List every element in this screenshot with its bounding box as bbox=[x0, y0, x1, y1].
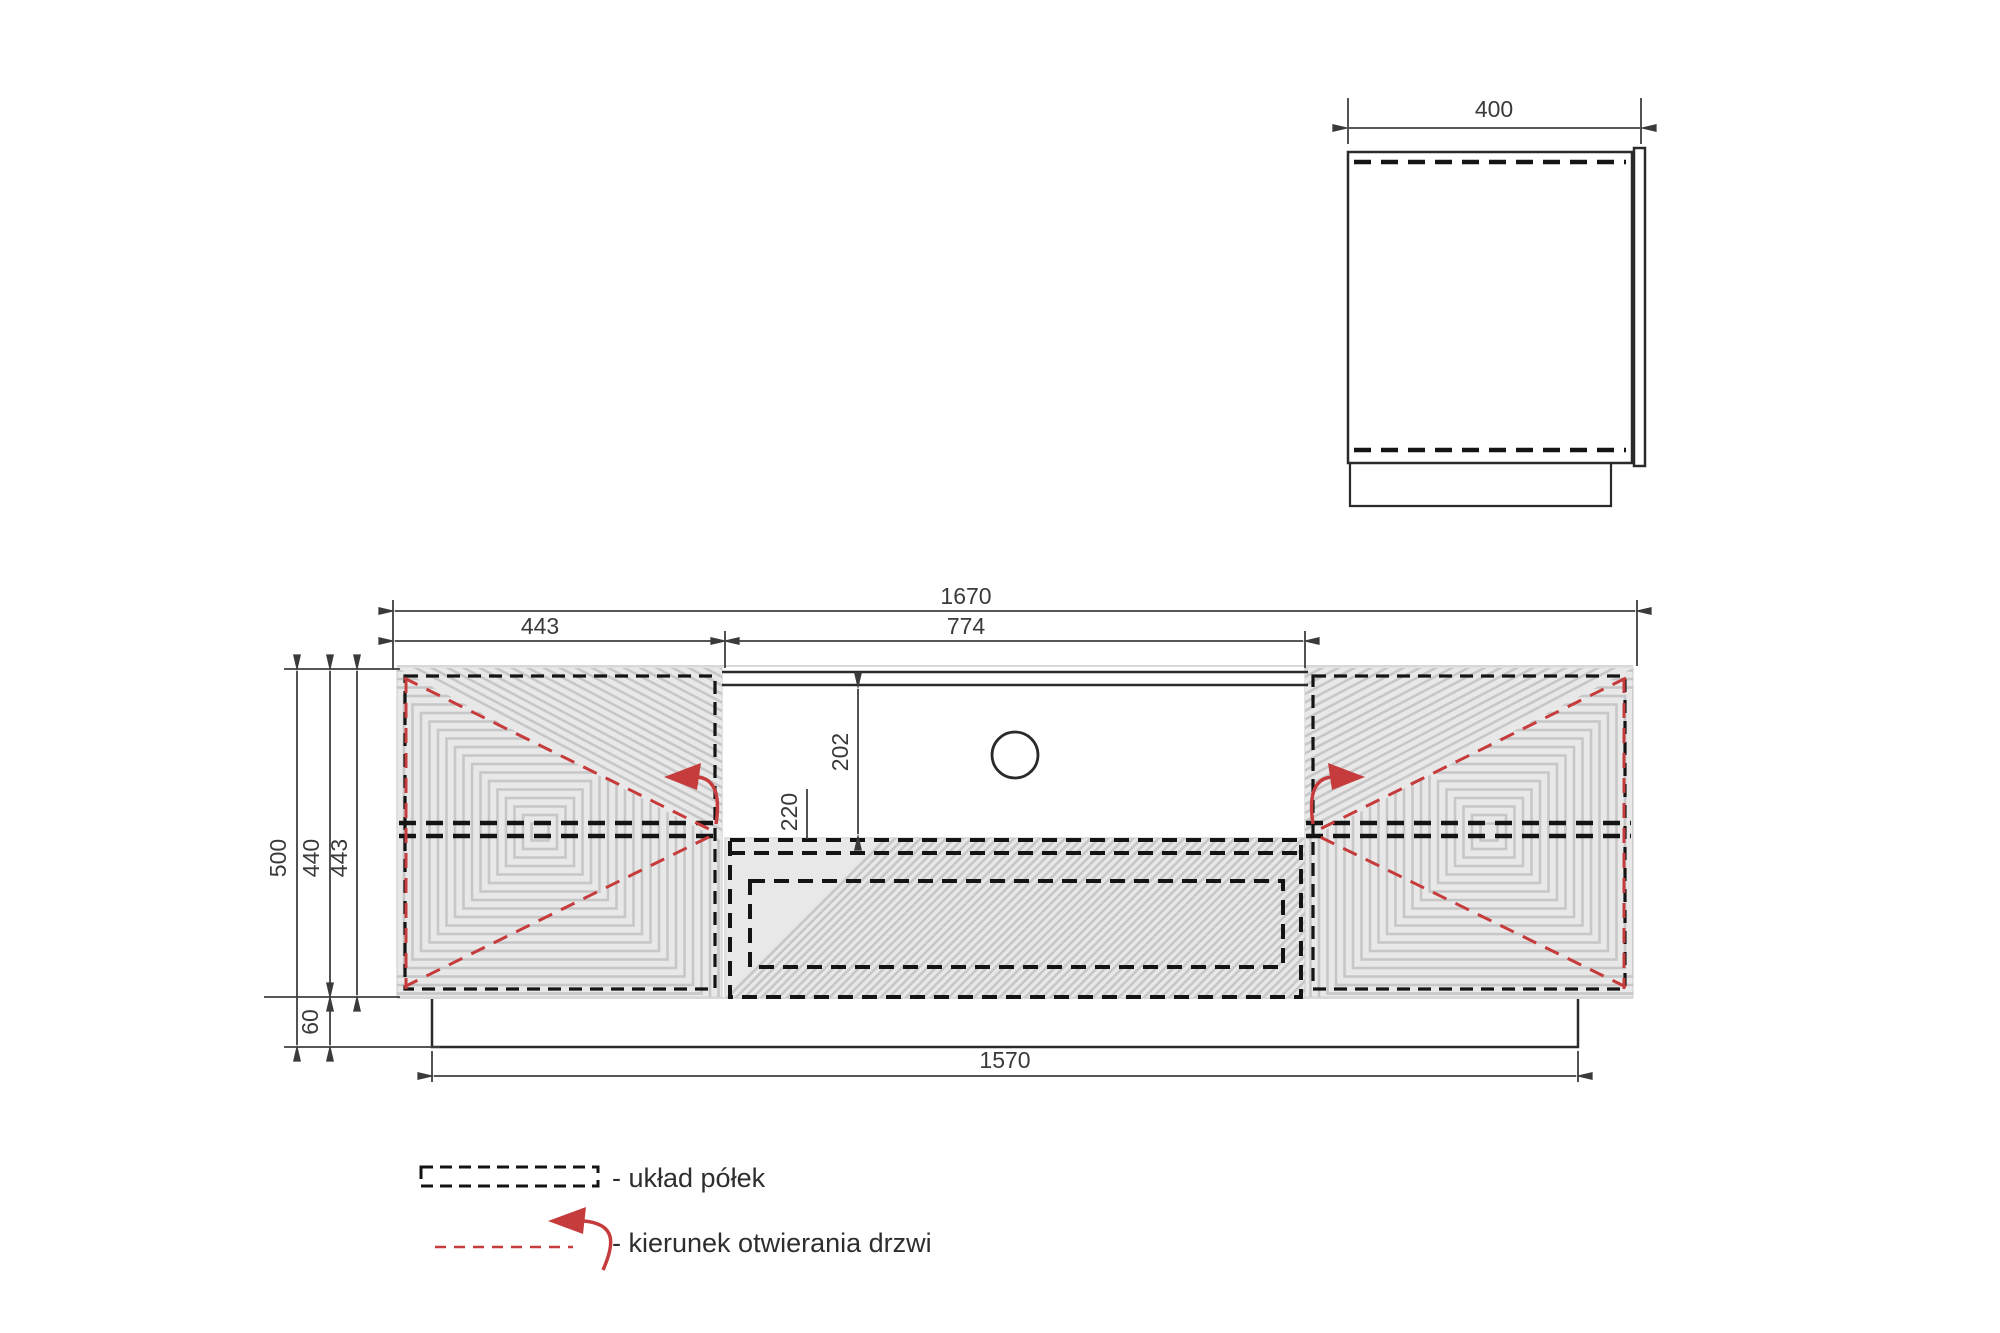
dim-drawer-offset-label: 220 bbox=[776, 793, 802, 831]
technical-drawing-page: 400 bbox=[0, 0, 2000, 1333]
tv-stand-drawing: 400 bbox=[0, 0, 2000, 1333]
side-door-front bbox=[1634, 148, 1645, 466]
dim-base-width-label: 1570 bbox=[979, 1047, 1030, 1073]
dim-total-height-label: 500 bbox=[265, 839, 291, 877]
dim-total-width-label: 1670 bbox=[940, 583, 991, 609]
dim-plinth-height-label: 60 bbox=[297, 1009, 323, 1035]
legend: - układ półek - kierunek otwierania drzw… bbox=[421, 1163, 932, 1270]
dim-body-height-label: 440 bbox=[298, 839, 324, 877]
dim-niche-height-label: 202 bbox=[827, 733, 853, 771]
legend-door-symbol-arrowhead bbox=[548, 1207, 586, 1234]
dim-middle-width-label: 774 bbox=[947, 613, 986, 639]
legend-door-symbol-arrow bbox=[584, 1221, 611, 1270]
dim-left-door-width-label: 443 bbox=[521, 613, 559, 639]
side-view: 400 bbox=[1348, 96, 1645, 506]
side-body bbox=[1348, 152, 1632, 463]
legend-door-label: - kierunek otwierania drzwi bbox=[612, 1228, 932, 1258]
dimension-depth: 400 bbox=[1348, 96, 1641, 144]
legend-shelf-label: - układ półek bbox=[612, 1163, 766, 1193]
cable-hole bbox=[992, 732, 1038, 778]
legend-shelf-symbol bbox=[421, 1167, 598, 1186]
middle-niche bbox=[722, 672, 1308, 778]
dim-depth-label: 400 bbox=[1475, 96, 1513, 122]
front-view: 1670 443 774 500 440 443 60 202 220 1570 bbox=[264, 389, 1693, 1333]
side-plinth bbox=[1350, 463, 1611, 506]
plinth bbox=[432, 999, 1578, 1047]
dim-door-height-label: 443 bbox=[326, 839, 352, 877]
